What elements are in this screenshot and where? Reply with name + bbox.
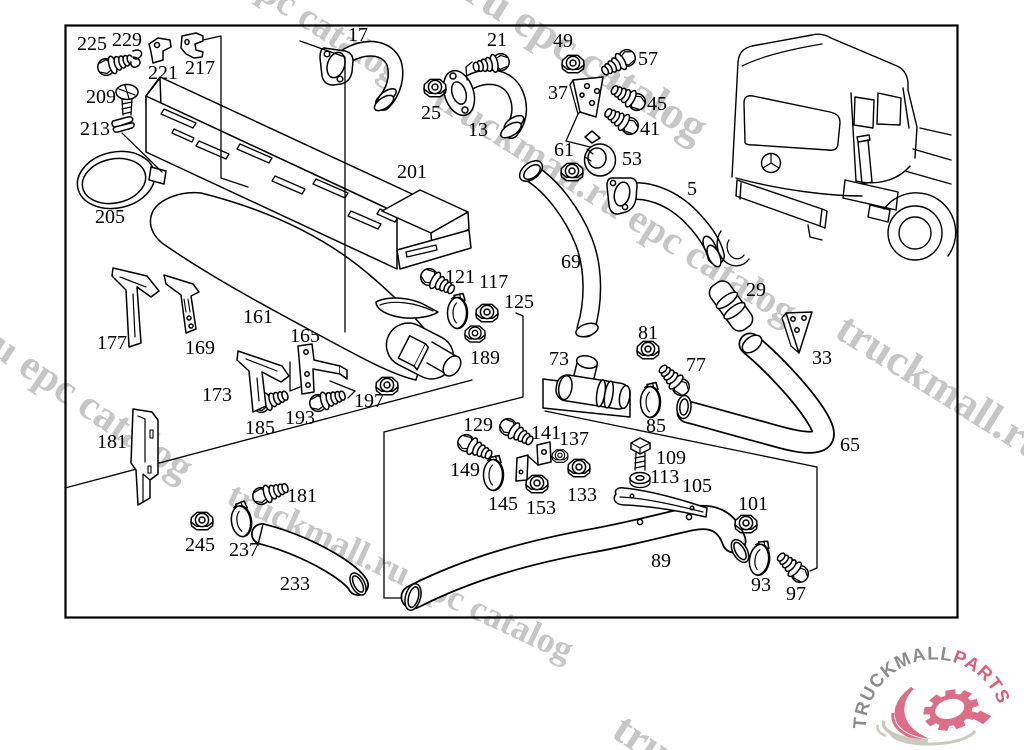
- svg-text:69: 69: [561, 251, 581, 273]
- svg-text:149: 149: [450, 459, 480, 481]
- svg-text:237: 237: [229, 539, 259, 561]
- svg-text:217: 217: [185, 57, 215, 79]
- svg-text:113: 113: [650, 466, 679, 488]
- svg-text:97: 97: [786, 583, 806, 605]
- svg-text:93: 93: [751, 574, 771, 596]
- svg-text:145: 145: [488, 493, 518, 515]
- svg-text:41: 41: [640, 118, 660, 140]
- svg-text:141: 141: [531, 422, 561, 444]
- svg-text:29: 29: [746, 279, 766, 301]
- svg-text:173: 173: [202, 384, 232, 406]
- svg-text:89: 89: [651, 550, 671, 572]
- svg-text:189: 189: [470, 347, 500, 369]
- svg-text:229: 229: [112, 29, 142, 51]
- svg-text:225: 225: [77, 33, 107, 55]
- svg-text:177: 177: [97, 332, 127, 354]
- svg-text:137: 137: [559, 428, 589, 450]
- svg-text:21: 21: [487, 29, 507, 51]
- svg-text:209: 209: [86, 86, 116, 108]
- svg-text:105: 105: [682, 475, 712, 497]
- svg-text:117: 117: [479, 271, 508, 293]
- svg-text:37: 37: [548, 82, 568, 104]
- svg-text:125: 125: [504, 291, 534, 313]
- svg-text:101: 101: [738, 493, 768, 515]
- svg-text:5: 5: [687, 178, 697, 200]
- svg-text:181: 181: [97, 431, 127, 453]
- svg-text:181: 181: [287, 485, 317, 507]
- svg-text:65: 65: [840, 434, 860, 456]
- svg-text:129: 129: [463, 414, 493, 436]
- svg-text:77: 77: [686, 354, 706, 376]
- svg-text:25: 25: [421, 102, 441, 124]
- svg-text:153: 153: [526, 497, 556, 519]
- svg-text:73: 73: [549, 348, 569, 370]
- svg-text:213: 213: [80, 118, 110, 140]
- svg-text:169: 169: [185, 337, 215, 359]
- svg-text:53: 53: [622, 148, 642, 170]
- svg-text:245: 245: [185, 534, 215, 556]
- svg-text:133: 133: [567, 484, 597, 506]
- svg-text:49: 49: [553, 30, 573, 52]
- svg-text:45: 45: [647, 93, 667, 115]
- svg-text:233: 233: [280, 573, 310, 595]
- svg-text:201: 201: [397, 161, 427, 183]
- svg-text:33: 33: [812, 347, 832, 369]
- svg-text:13: 13: [468, 119, 488, 141]
- svg-text:57: 57: [638, 48, 658, 70]
- svg-text:161: 161: [243, 306, 273, 328]
